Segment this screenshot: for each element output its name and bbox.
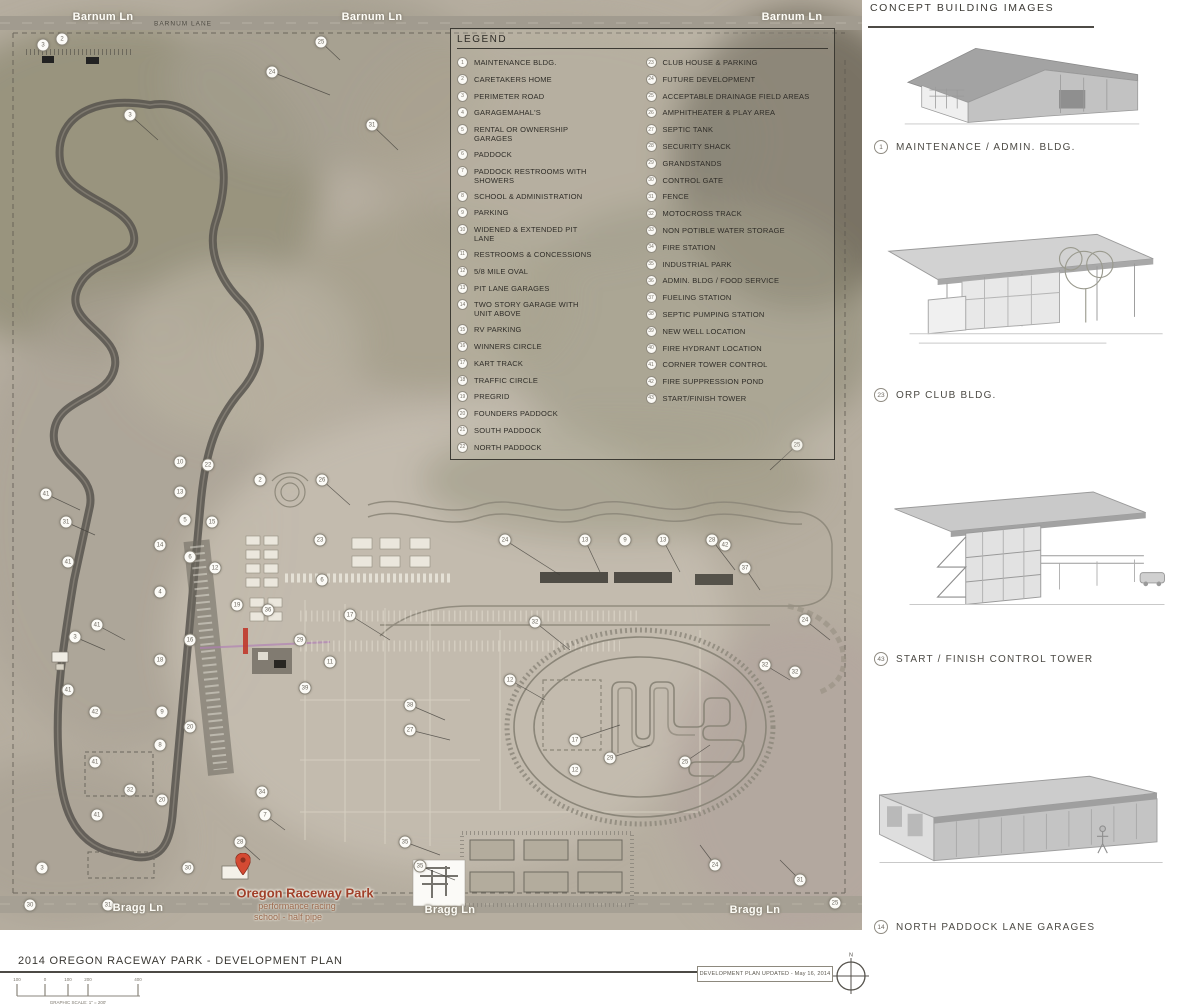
legend-item-number: 37 [646, 292, 657, 303]
map-marker: 36 [262, 604, 275, 617]
map-marker: 12 [569, 764, 582, 777]
legend-item-label: SEPTIC PUMPING STATION [663, 309, 765, 319]
legend-item: 36ADMIN. BLDG / FOOD SERVICE [646, 275, 829, 286]
development-plan-sheet: 2325243312510222624113515312314641126419… [0, 0, 1200, 1008]
legend-item-number: 36 [646, 275, 657, 286]
legend-item-label: FUELING STATION [663, 292, 732, 302]
legend-item: 30CONTROL GATE [646, 175, 829, 186]
legend-item-label: MOTOCROSS TRACK [663, 208, 742, 218]
figure-label: START / FINISH CONTROL TOWER [896, 654, 1093, 665]
map-marker: 3 [37, 39, 50, 52]
svg-text:200: 200 [84, 977, 92, 982]
map-marker: 25 [315, 36, 328, 49]
map-marker: 32 [124, 784, 137, 797]
map-pin-icon [236, 853, 251, 880]
legend-item: 16WINNERS CIRCLE [457, 341, 640, 352]
legend-item-label: FUTURE DEVELOPMENT [663, 74, 756, 84]
figure-caption-3: 43 START / FINISH CONTROL TOWER [874, 652, 1093, 666]
legend-item: 17KART TRACK [457, 358, 640, 369]
legend-item-label: CONTROL GATE [663, 175, 724, 185]
map-marker: 32 [529, 616, 542, 629]
figure-maintenance-bldg [872, 36, 1182, 149]
legend-column-right: 23CLUB HOUSE & PARKING24FUTURE DEVELOPME… [646, 57, 829, 459]
legend-item-number: 9 [457, 207, 468, 218]
legend-item-number: 33 [646, 225, 657, 236]
road-label-bragg-center: Bragg Ln [425, 904, 476, 916]
map-marker: 31 [794, 874, 807, 887]
maintenance-bldg-sketch [872, 36, 1172, 144]
legend-item-number: 10 [457, 224, 468, 235]
legend-item-number: 14 [457, 299, 468, 310]
legend-item-label: NORTH PADDOCK [474, 442, 542, 452]
legend-title: LEGEND [457, 34, 828, 45]
svg-text:100: 100 [13, 977, 21, 982]
map-marker: 41 [40, 488, 53, 501]
map-marker: 31 [60, 516, 73, 529]
legend-divider [457, 48, 828, 49]
legend-item: 32MOTOCROSS TRACK [646, 208, 829, 219]
map-marker: 11 [324, 656, 337, 669]
figure-paddock-garages [872, 735, 1182, 905]
map-marker: 7 [259, 809, 272, 822]
aerial-site-map: 2325243312510222624113515312314641126419… [0, 0, 862, 930]
svg-text:400: 400 [134, 977, 142, 982]
legend-item-number: 27 [646, 124, 657, 135]
map-marker: 41 [89, 756, 102, 769]
legend-item: 35INDUSTRIAL PARK [646, 259, 829, 270]
legend-item: 26AMPHITHEATER & PLAY AREA [646, 107, 829, 118]
legend-item: 23CLUB HOUSE & PARKING [646, 57, 829, 68]
map-marker: 9 [156, 706, 169, 719]
legend-item-label: ADMIN. BLDG / FOOD SERVICE [663, 275, 780, 285]
legend-item-number: 11 [457, 249, 468, 260]
map-marker: 24 [266, 66, 279, 79]
legend-panel: LEGEND 1MAINTENANCE BLDG.2CARETAKERS HOM… [450, 28, 835, 460]
map-marker: 31 [366, 119, 379, 132]
map-marker: 27 [404, 724, 417, 737]
map-marker: 37 [739, 562, 752, 575]
legend-item-label: RESTROOMS & CONCESSIONS [474, 249, 592, 259]
legend-item-label: INDUSTRIAL PARK [663, 259, 732, 269]
legend-item-number: 40 [646, 343, 657, 354]
figure-number-badge: 1 [874, 140, 888, 154]
legend-item-label: PERIMETER ROAD [474, 91, 544, 101]
legend-item-label: PARKING [474, 207, 509, 217]
map-marker: 6 [184, 551, 197, 564]
club-bldg-sketch [872, 205, 1172, 365]
legend-item-number: 38 [646, 309, 657, 320]
north-compass-icon: N [826, 950, 876, 1000]
legend-item-label: AMPHITHEATER & PLAY AREA [663, 107, 776, 117]
legend-item-number: 30 [646, 175, 657, 186]
map-marker: 12 [209, 562, 222, 575]
map-marker: 15 [206, 516, 219, 529]
legend-item-number: 2 [457, 74, 468, 85]
legend-item: 19PREGRID [457, 391, 640, 402]
map-marker: 12 [504, 674, 517, 687]
map-marker: 42 [89, 706, 102, 719]
poi-subtitle-1: performance racing [258, 901, 336, 911]
map-marker: 30 [182, 862, 195, 875]
legend-item-label: SCHOOL & ADMINISTRATION [474, 191, 582, 201]
legend-item-label: PADDOCK [474, 149, 512, 159]
legend-item-number: 6 [457, 149, 468, 160]
road-label-bragg-left: Bragg Ln [113, 902, 164, 914]
map-marker: 22 [202, 459, 215, 472]
legend-item-label: PREGRID [474, 391, 510, 401]
legend-item-number: 28 [646, 141, 657, 152]
legend-item: 42FIRE SUPPRESSION POND [646, 376, 829, 387]
map-marker: 20 [156, 794, 169, 807]
map-marker: 28 [234, 836, 247, 849]
legend-item: 20FOUNDERS PADDOCK [457, 408, 640, 419]
map-marker: 16 [184, 634, 197, 647]
legend-item-label: WINNERS CIRCLE [474, 341, 542, 351]
road-label-barnum-small: BARNUM LANE [154, 21, 212, 28]
concept-images-underline [868, 26, 1094, 28]
legend-item-number: 18 [457, 375, 468, 386]
legend-item-label: PIT LANE GARAGES [474, 283, 550, 293]
legend-item-number: 22 [457, 442, 468, 453]
legend-item: 7PADDOCK RESTROOMS WITH SHOWERS [457, 166, 640, 185]
legend-item-number: 23 [646, 57, 657, 68]
legend-item-label: TRAFFIC CIRCLE [474, 375, 538, 385]
legend-item-number: 24 [646, 74, 657, 85]
map-marker: 13 [579, 534, 592, 547]
legend-item-number: 25 [646, 91, 657, 102]
legend-item: 15RV PARKING [457, 324, 640, 335]
map-marker: 29 [604, 752, 617, 765]
map-marker: 24 [799, 614, 812, 627]
legend-item-number: 31 [646, 191, 657, 202]
legend-item-number: 16 [457, 341, 468, 352]
concept-images-title: CONCEPT BUILDING IMAGES [870, 2, 1054, 14]
legend-item-number: 17 [457, 358, 468, 369]
legend-item-label: NEW WELL LOCATION [663, 326, 746, 336]
map-marker: 25 [829, 897, 842, 910]
legend-item-label: FIRE HYDRANT LOCATION [663, 343, 762, 353]
control-tower-sketch [872, 472, 1172, 632]
legend-item-number: 41 [646, 359, 657, 370]
legend-item: 34FIRE STATION [646, 242, 829, 253]
updated-stamp: DEVELOPMENT PLAN UPDATED - May 16, 2014 [697, 966, 833, 982]
legend-item: 125/8 MILE OVAL [457, 266, 640, 277]
svg-text:GRAPHIC SCALE: 1" = 200': GRAPHIC SCALE: 1" = 200' [50, 1000, 107, 1005]
map-marker: 25 [679, 756, 692, 769]
legend-item-number: 1 [457, 57, 468, 68]
legend-item: 3PERIMETER ROAD [457, 91, 640, 102]
paddock-garages-sketch [872, 735, 1172, 900]
legend-item: 39NEW WELL LOCATION [646, 326, 829, 337]
legend-item-label: RENTAL OR OWNERSHIP GARAGES [474, 124, 594, 143]
map-marker: 41 [91, 809, 104, 822]
map-marker: 4 [154, 586, 167, 599]
map-marker: 30 [24, 899, 37, 912]
legend-item-label: FIRE STATION [663, 242, 716, 252]
legend-item-number: 19 [457, 391, 468, 402]
legend-item-label: CLUB HOUSE & PARKING [663, 57, 758, 67]
legend-item: 40FIRE HYDRANT LOCATION [646, 343, 829, 354]
figure-label: ORP CLUB BLDG. [896, 390, 997, 401]
legend-item-label: GARAGEMAHAL'S [474, 107, 541, 117]
map-marker: 17 [344, 609, 357, 622]
legend-item: 21SOUTH PADDOCK [457, 425, 640, 436]
legend-item: 24FUTURE DEVELOPMENT [646, 74, 829, 85]
map-marker: 41 [91, 619, 104, 632]
legend-item: 9PARKING [457, 207, 640, 218]
map-marker: 3 [36, 862, 49, 875]
map-marker: 3 [124, 109, 137, 122]
map-marker: 34 [256, 786, 269, 799]
legend-item-label: WIDENED & EXTENDED PIT LANE [474, 224, 594, 243]
updated-text: DEVELOPMENT PLAN UPDATED - May 16, 2014 [700, 971, 831, 977]
map-marker: 32 [789, 666, 802, 679]
poi-title: Oregon Raceway Park [236, 886, 373, 901]
road-label-barnum-left: Barnum Ln [73, 11, 134, 23]
map-marker: 41 [62, 556, 75, 569]
map-marker: 35 [414, 860, 427, 873]
legend-item: 28SECURITY SHACK [646, 141, 829, 152]
legend-column-left: 1MAINTENANCE BLDG.2CARETAKERS HOME3PERIM… [457, 57, 640, 459]
svg-text:N: N [849, 953, 853, 959]
map-marker: 2 [254, 474, 267, 487]
legend-item-label: TWO STORY GARAGE WITH UNIT ABOVE [474, 299, 594, 318]
map-marker: 35 [399, 836, 412, 849]
legend-item: 22NORTH PADDOCK [457, 442, 640, 453]
legend-item: 14TWO STORY GARAGE WITH UNIT ABOVE [457, 299, 640, 318]
legend-item-number: 21 [457, 425, 468, 436]
legend-item-label: GRANDSTANDS [663, 158, 722, 168]
svg-text:0: 0 [44, 977, 47, 982]
legend-item: 43START/FINISH TOWER [646, 393, 829, 404]
legend-item: 18TRAFFIC CIRCLE [457, 375, 640, 386]
legend-item: 11RESTROOMS & CONCESSIONS [457, 249, 640, 260]
map-marker: 24 [499, 534, 512, 547]
map-marker: 29 [294, 634, 307, 647]
road-label-barnum-right: Barnum Ln [762, 11, 823, 23]
figure-control-tower [872, 472, 1182, 637]
figure-caption-2: 23 ORP CLUB BLDG. [874, 388, 997, 402]
legend-item-number: 39 [646, 326, 657, 337]
map-marker: 26 [316, 474, 329, 487]
map-marker: 13 [657, 534, 670, 547]
figure-number-badge: 43 [874, 652, 888, 666]
figure-number-badge: 23 [874, 388, 888, 402]
map-marker: 2 [56, 33, 69, 46]
legend-item-number: 7 [457, 166, 468, 177]
legend-item: 29GRANDSTANDS [646, 158, 829, 169]
figure-club-bldg [872, 205, 1182, 370]
poi-subtitle-2: school - half pipe [254, 912, 322, 922]
legend-item-number: 32 [646, 208, 657, 219]
map-marker: 42 [719, 539, 732, 552]
graphic-scale-bar: 100 0 100 200 400 GRAPHIC SCALE: 1" = 20… [12, 975, 172, 1007]
legend-item-number: 3 [457, 91, 468, 102]
legend-item-number: 12 [457, 266, 468, 277]
legend-item-label: FOUNDERS PADDOCK [474, 408, 558, 418]
legend-item-number: 15 [457, 324, 468, 335]
map-marker: 6 [316, 574, 329, 587]
map-marker: 32 [759, 659, 772, 672]
concept-images-panel: CONCEPT BUILDING IMAGES 1 MAINTENANCE / … [862, 0, 1200, 955]
map-marker: 10 [174, 456, 187, 469]
figure-label: MAINTENANCE / ADMIN. BLDG. [896, 142, 1076, 153]
sheet-title: 2014 OREGON RACEWAY PARK - DEVELOPMENT P… [18, 955, 343, 967]
legend-item-number: 43 [646, 393, 657, 404]
legend-item: 31FENCE [646, 191, 829, 202]
legend-item-label: SECURITY SHACK [663, 141, 732, 151]
legend-item: 5RENTAL OR OWNERSHIP GARAGES [457, 124, 640, 143]
legend-item: 27SEPTIC TANK [646, 124, 829, 135]
map-marker: 39 [299, 682, 312, 695]
legend-item-number: 5 [457, 124, 468, 135]
map-marker: 5 [179, 514, 192, 527]
legend-item-label: ACCEPTABLE DRAINAGE FIELD AREAS [663, 91, 810, 101]
legend-item-label: SOUTH PADDOCK [474, 425, 541, 435]
legend-item: 33NON POTIBLE WATER STORAGE [646, 225, 829, 236]
legend-item: 2CARETAKERS HOME [457, 74, 640, 85]
legend-item-number: 34 [646, 242, 657, 253]
legend-item: 8SCHOOL & ADMINISTRATION [457, 191, 640, 202]
map-marker: 9 [619, 534, 632, 547]
legend-item-number: 8 [457, 191, 468, 202]
figure-label: NORTH PADDOCK LANE GARAGES [896, 922, 1095, 933]
legend-item-label: KART TRACK [474, 358, 523, 368]
map-marker: 17 [569, 734, 582, 747]
svg-text:100: 100 [64, 977, 72, 982]
map-marker: 41 [62, 684, 75, 697]
legend-item: 37FUELING STATION [646, 292, 829, 303]
legend-item-label: FIRE SUPPRESSION POND [663, 376, 764, 386]
map-marker: 8 [154, 739, 167, 752]
legend-item-label: PADDOCK RESTROOMS WITH SHOWERS [474, 166, 594, 185]
legend-item: 38SEPTIC PUMPING STATION [646, 309, 829, 320]
legend-item: 13PIT LANE GARAGES [457, 283, 640, 294]
legend-item-label: RV PARKING [474, 324, 522, 334]
legend-item: 6PADDOCK [457, 149, 640, 160]
road-label-barnum-mid: Barnum Ln [342, 11, 403, 23]
map-marker: 14 [154, 539, 167, 552]
map-marker: 23 [314, 534, 327, 547]
legend-item-number: 29 [646, 158, 657, 169]
legend-item-number: 4 [457, 107, 468, 118]
map-marker: 38 [404, 699, 417, 712]
legend-item-label: FENCE [663, 191, 689, 201]
map-marker: 24 [709, 859, 722, 872]
map-marker: 20 [184, 721, 197, 734]
figure-caption-4: 14 NORTH PADDOCK LANE GARAGES [874, 920, 1095, 934]
road-label-bragg-right: Bragg Ln [730, 904, 781, 916]
map-marker: 28 [706, 534, 719, 547]
map-marker: 19 [231, 599, 244, 612]
figure-number-badge: 14 [874, 920, 888, 934]
map-marker: 18 [154, 654, 167, 667]
legend-item: 41CORNER TOWER CONTROL [646, 359, 829, 370]
legend-item-label: CARETAKERS HOME [474, 74, 552, 84]
map-marker: 3 [69, 631, 82, 644]
legend-item-label: MAINTENANCE BLDG. [474, 57, 557, 67]
legend-item: 25ACCEPTABLE DRAINAGE FIELD AREAS [646, 91, 829, 102]
legend-item: 1MAINTENANCE BLDG. [457, 57, 640, 68]
figure-caption-1: 1 MAINTENANCE / ADMIN. BLDG. [874, 140, 1076, 154]
legend-item: 4GARAGEMAHAL'S [457, 107, 640, 118]
legend-item-label: START/FINISH TOWER [663, 393, 747, 403]
legend-item-label: 5/8 MILE OVAL [474, 266, 528, 276]
legend-item-number: 26 [646, 107, 657, 118]
legend-item: 10WIDENED & EXTENDED PIT LANE [457, 224, 640, 243]
legend-item-number: 13 [457, 283, 468, 294]
legend-item-number: 35 [646, 259, 657, 270]
legend-item-label: SEPTIC TANK [663, 124, 714, 134]
legend-item-number: 42 [646, 376, 657, 387]
map-marker: 13 [174, 486, 187, 499]
legend-item-label: CORNER TOWER CONTROL [663, 359, 768, 369]
legend-item-number: 20 [457, 408, 468, 419]
legend-item-label: NON POTIBLE WATER STORAGE [663, 225, 785, 235]
